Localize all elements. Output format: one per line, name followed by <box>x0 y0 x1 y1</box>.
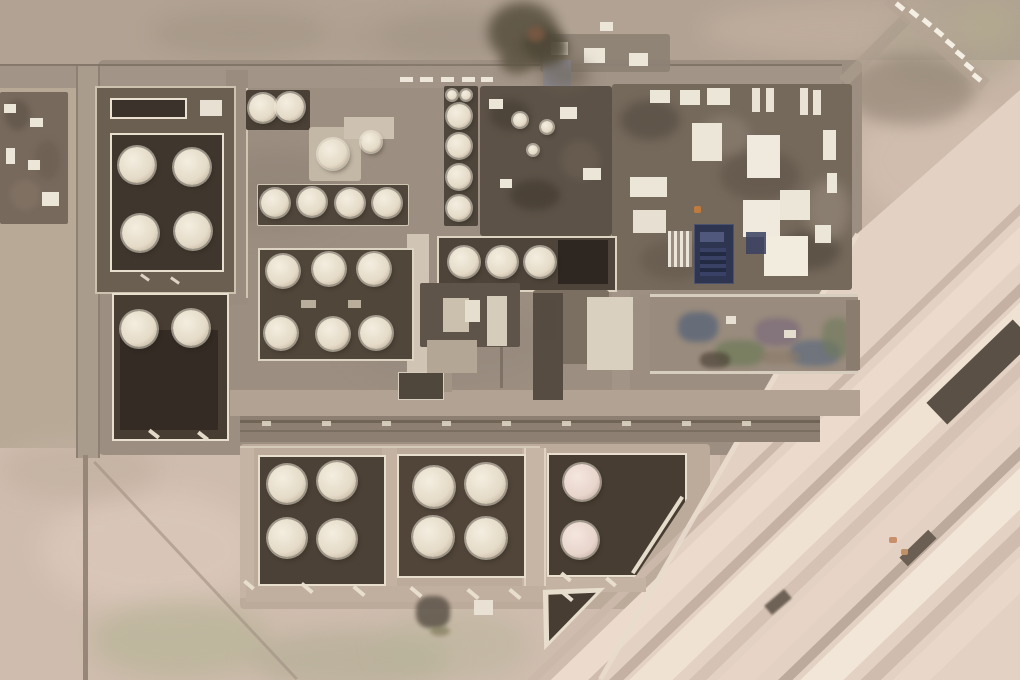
pipe-bridge-dash <box>622 421 631 426</box>
laydown-end <box>846 300 860 370</box>
storage-tank <box>122 215 158 251</box>
road-marking <box>420 77 433 82</box>
building-white <box>823 130 836 160</box>
building-white <box>680 90 700 105</box>
storage-tank <box>249 94 277 122</box>
pipe-bridge-dash <box>382 421 391 426</box>
storage-tank <box>313 253 345 285</box>
storage-tank <box>267 255 299 287</box>
building-white <box>600 22 613 31</box>
pipe-bridge-dash <box>502 421 511 426</box>
road-marking <box>462 77 475 82</box>
flare-glow <box>527 26 545 42</box>
building-white <box>764 236 808 276</box>
terrain-blotch <box>380 610 530 680</box>
building-white <box>650 90 670 103</box>
pipe-bar <box>766 88 774 112</box>
storage-tank <box>447 90 457 100</box>
storage-tank <box>261 189 289 217</box>
process-pad <box>427 340 477 373</box>
building-white <box>747 135 780 178</box>
pipe-bridge-dash <box>682 421 691 426</box>
storage-tank <box>525 247 555 277</box>
building-white <box>707 88 730 105</box>
building-white <box>4 104 16 113</box>
settling-basin <box>110 98 187 119</box>
storage-tank <box>447 196 471 220</box>
satellite-image-refinery <box>0 0 1020 680</box>
building-light <box>487 296 507 346</box>
road-marking <box>400 77 413 82</box>
building-white <box>584 48 605 63</box>
laydown-material <box>760 350 800 364</box>
road-marking <box>481 77 493 82</box>
storage-tank <box>298 188 326 216</box>
pipe-line <box>240 430 820 432</box>
terrain-blotch <box>430 626 450 636</box>
storage-tank <box>373 189 401 217</box>
storage-tank <box>447 104 471 128</box>
storage-tank <box>447 134 471 158</box>
storage-tank <box>119 147 155 183</box>
road-edge <box>76 66 78 458</box>
terrain-blotch <box>150 8 330 58</box>
cooling-tower-striped <box>668 231 692 267</box>
cooling-tower-top <box>700 232 724 242</box>
containment-floor <box>558 240 608 284</box>
storage-tank <box>528 145 538 155</box>
building-white <box>200 100 222 116</box>
road-marking <box>441 77 454 82</box>
plume-shadow <box>540 60 590 90</box>
building-white <box>560 107 577 119</box>
building-white <box>827 173 837 193</box>
storage-tank <box>268 465 306 503</box>
storage-tank <box>318 139 348 169</box>
storage-tank <box>175 213 211 249</box>
building-white <box>474 600 493 615</box>
terrain-blotch <box>960 0 1020 50</box>
building-white <box>28 160 40 170</box>
containment-pad <box>301 300 316 308</box>
building-white <box>815 225 831 243</box>
storage-tank <box>541 121 553 133</box>
building-white <box>780 190 810 220</box>
pipe-bar <box>813 90 821 115</box>
road-groups-left <box>240 448 254 598</box>
pipe-bridge-dash <box>742 421 751 426</box>
corridor-cargo <box>901 549 908 555</box>
storage-tank <box>447 165 471 189</box>
storage-tank <box>466 518 506 558</box>
smoke-plume <box>500 48 534 74</box>
process-mottle <box>510 180 560 210</box>
tank-containment-s2 <box>397 454 526 578</box>
storage-tank <box>268 519 306 557</box>
building-white <box>630 177 667 197</box>
storage-tank <box>265 317 297 349</box>
storage-tank <box>318 520 356 558</box>
laydown-crate <box>726 316 736 324</box>
road-left-lower <box>83 455 88 680</box>
storage-tank <box>466 464 506 504</box>
storage-tank <box>360 317 392 349</box>
basin-small <box>398 372 444 400</box>
building-white <box>629 53 648 66</box>
laydown-crate <box>784 330 796 338</box>
road-edge <box>240 446 540 448</box>
building-white <box>500 179 512 188</box>
ground-texture <box>10 180 40 210</box>
pipe-bridge-dash <box>322 421 331 426</box>
storage-tank <box>318 462 356 500</box>
smoke-drift <box>330 18 510 58</box>
storage-tank <box>276 93 304 121</box>
laydown-material <box>700 352 730 368</box>
storage-tank <box>414 467 454 507</box>
storage-tank <box>487 247 517 277</box>
storage-tank <box>562 522 598 558</box>
laydown-edge <box>650 294 858 297</box>
storage-tank <box>449 247 479 277</box>
building-white <box>489 99 503 109</box>
building-white <box>583 168 601 180</box>
storage-tank <box>461 90 471 100</box>
storage-tank <box>174 149 210 185</box>
building-light <box>587 297 633 370</box>
pipe-bridge-dash <box>262 421 271 426</box>
cooling-tower-cells <box>700 248 726 276</box>
storage-tank <box>564 464 600 500</box>
maintenance-blob <box>416 596 450 628</box>
building-white <box>6 148 15 164</box>
storage-tank <box>317 318 349 350</box>
pipe-bar <box>800 88 808 115</box>
storage-tank <box>173 310 209 346</box>
storage-tank <box>336 189 364 217</box>
building-white <box>465 300 480 322</box>
terrain-blotch <box>90 600 270 680</box>
laydown-edge <box>650 371 858 374</box>
building-white <box>692 123 722 161</box>
ground-texture <box>620 100 680 140</box>
storage-tank <box>413 517 453 557</box>
pipe-bridge-dash <box>562 421 571 426</box>
terrain-blotch <box>40 490 260 610</box>
containment-pad <box>348 300 361 308</box>
pipe-bridge-dash <box>442 421 451 426</box>
road-edge <box>544 448 546 598</box>
building-white <box>30 118 43 127</box>
equipment-orange <box>694 206 701 213</box>
equipment-blue <box>746 232 766 254</box>
storage-tank <box>358 253 390 285</box>
building-white <box>633 210 666 233</box>
corridor-cargo <box>889 537 897 543</box>
storage-tank <box>513 113 527 127</box>
pipe-bar <box>752 88 760 112</box>
equipment-dark <box>540 300 556 340</box>
storage-tank <box>121 311 157 347</box>
laydown-material <box>678 312 718 342</box>
building-white <box>42 192 59 206</box>
storage-tank <box>361 132 381 152</box>
road-groups-bottom <box>246 586 546 602</box>
